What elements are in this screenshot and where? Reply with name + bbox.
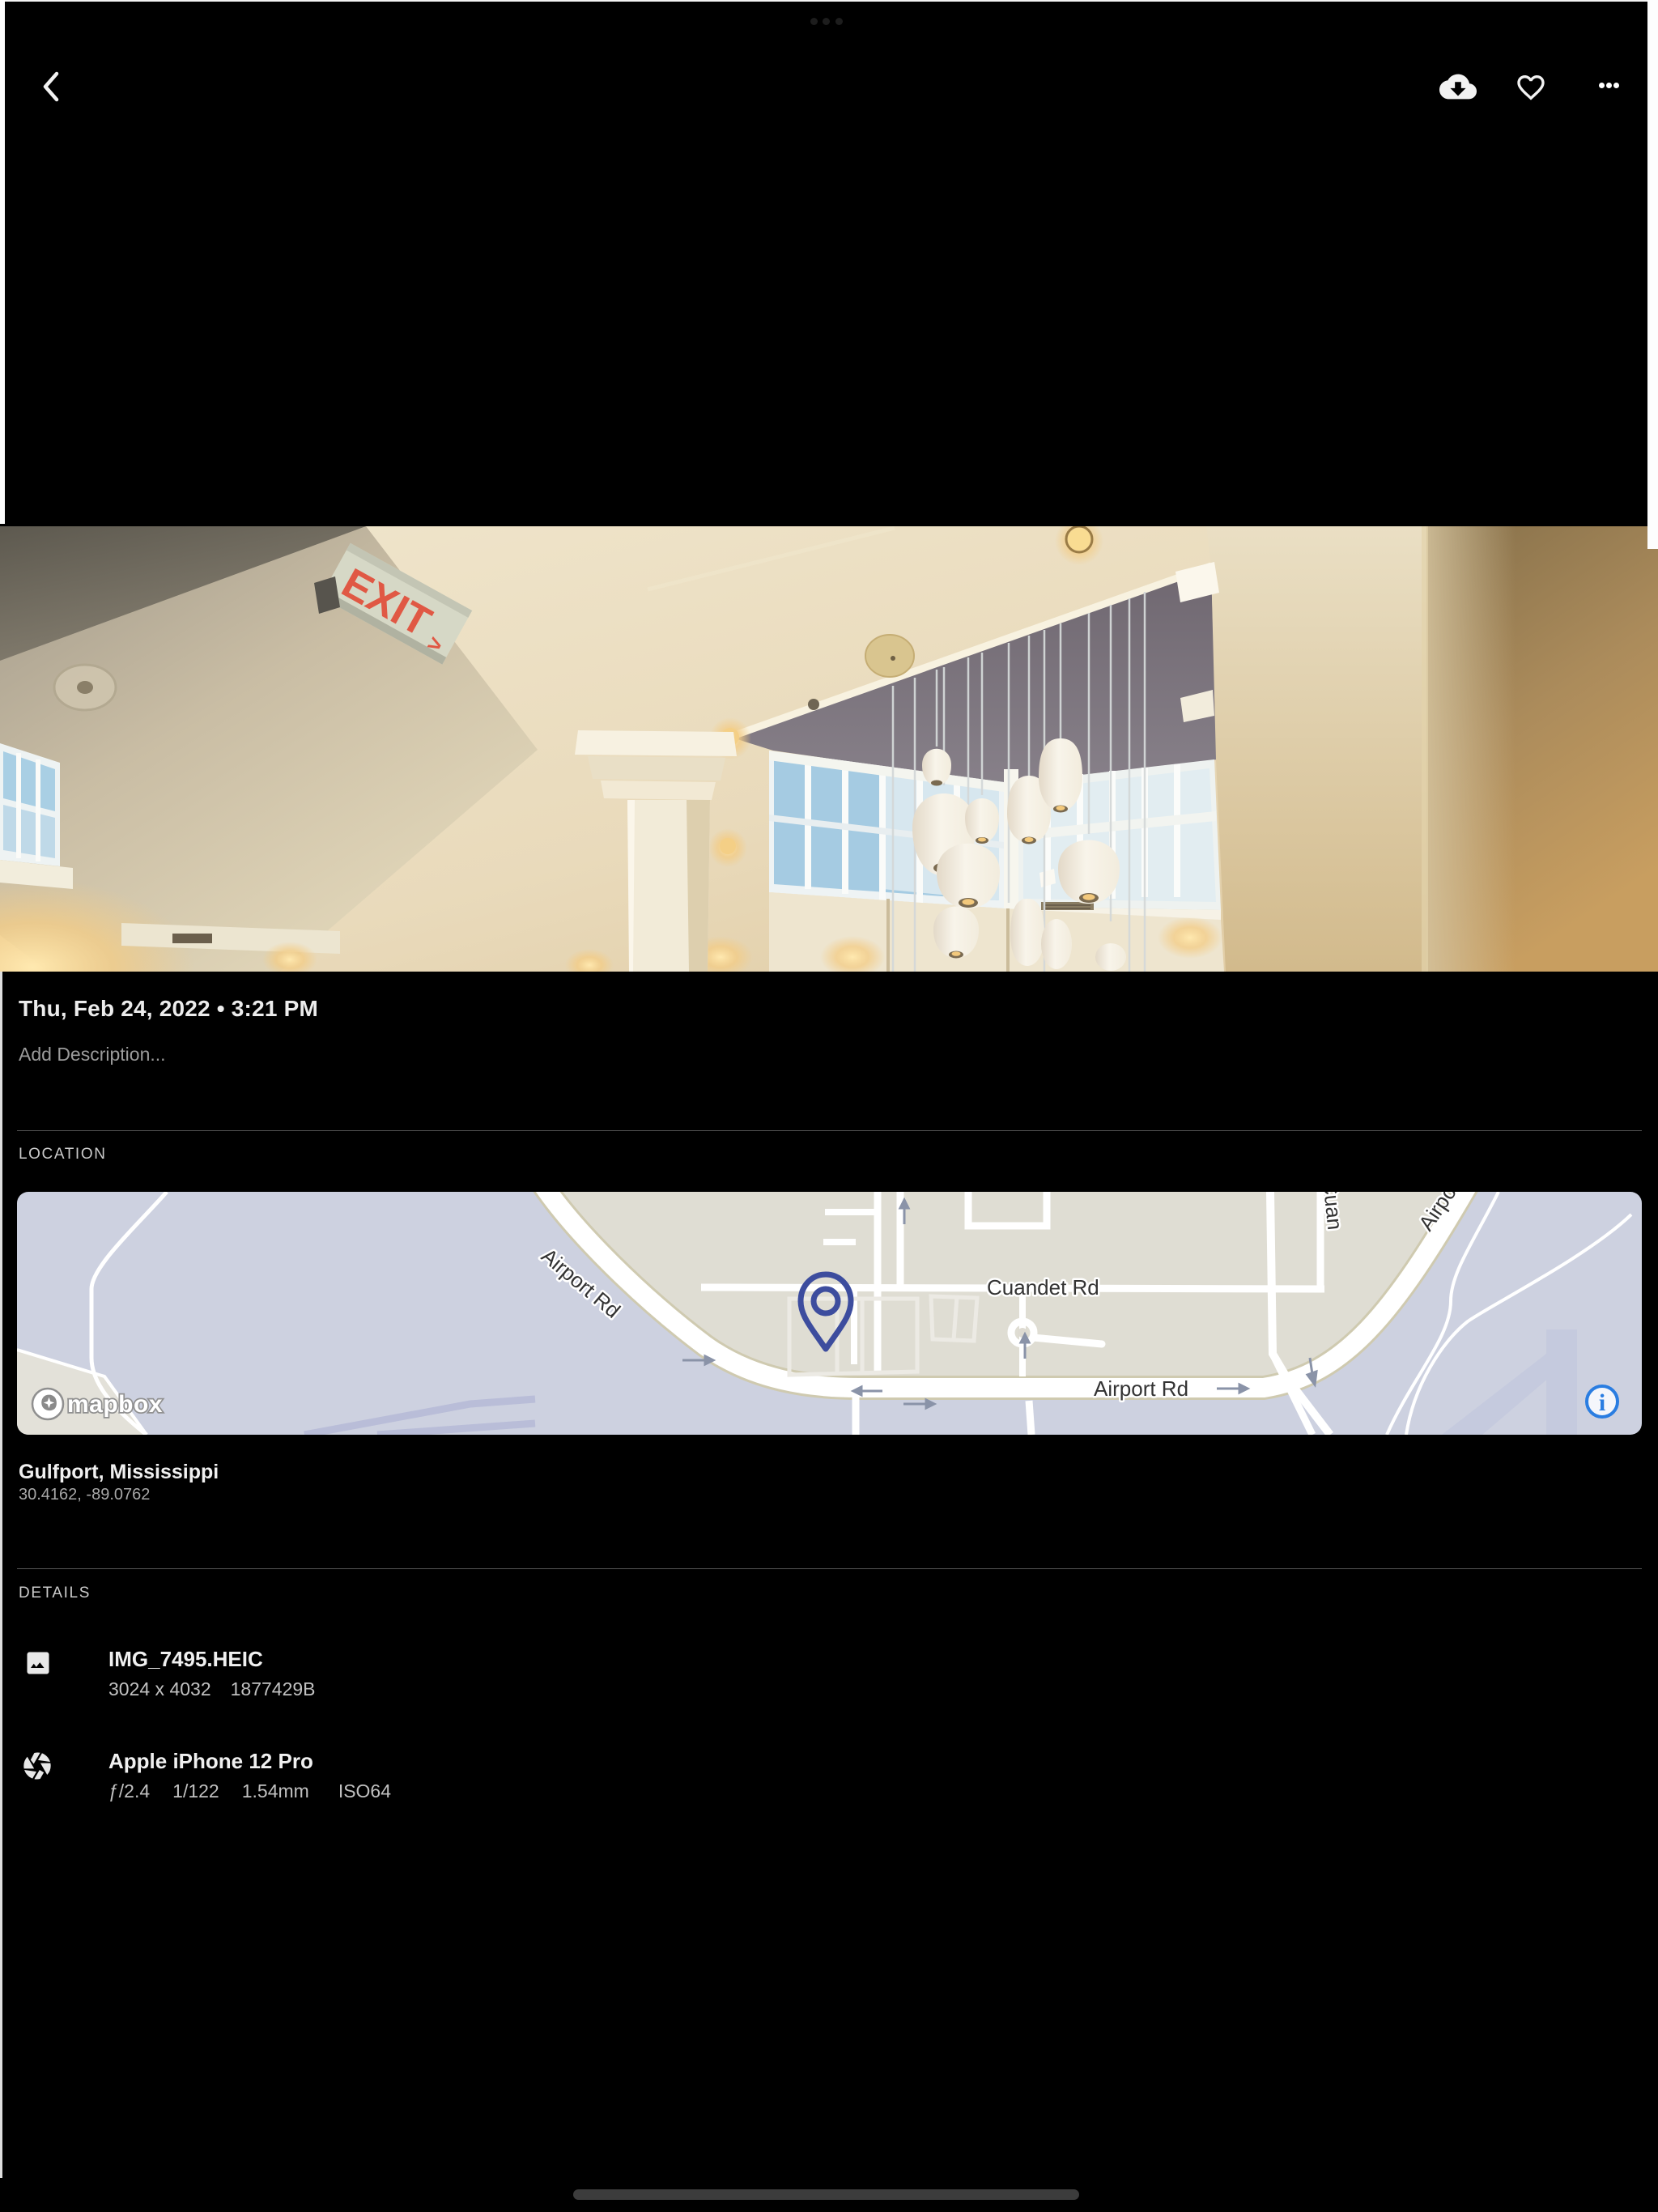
svg-text:Airport Rd: Airport Rd (1094, 1376, 1188, 1401)
svg-text:i: i (1599, 1389, 1605, 1416)
svg-text:mapbox: mapbox (67, 1391, 163, 1418)
svg-text:Cuandet Rd: Cuandet Rd (987, 1275, 1099, 1300)
